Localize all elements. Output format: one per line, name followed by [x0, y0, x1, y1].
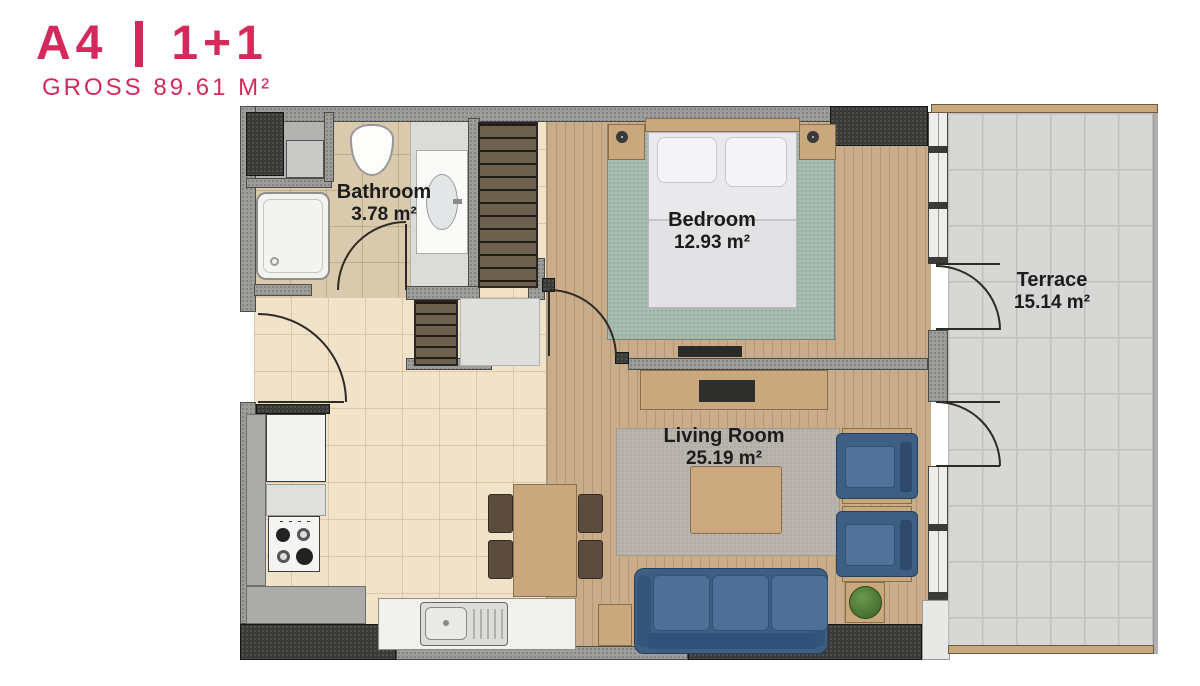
stove-knobs [277, 520, 313, 523]
column-southwest [240, 624, 396, 660]
wall-bathroom-south-left [254, 284, 312, 296]
sofa-cushion-3 [771, 575, 828, 631]
dining-chair-1 [488, 494, 513, 533]
sofa-cushion-1 [653, 575, 710, 631]
fridge [266, 414, 326, 482]
pillow-right [725, 137, 787, 187]
tv-console [640, 370, 828, 410]
wardrobe [478, 122, 538, 288]
faucet-icon [453, 199, 462, 204]
armchair-1-back [900, 442, 912, 492]
sofa-cushion-2 [712, 575, 769, 631]
entry-closet [414, 300, 458, 366]
wall-entry-nook [256, 404, 330, 414]
terrace-corner-cap [922, 600, 950, 660]
dining-table [513, 484, 577, 597]
glass-mullion-3 [928, 257, 948, 264]
washer [286, 140, 324, 178]
column-northwest [246, 112, 284, 176]
terrace-name: Terrace [1014, 268, 1090, 292]
armchair-2-seat [845, 524, 895, 566]
terrace-bottom-band [948, 645, 1154, 654]
burner-2 [297, 528, 310, 541]
bedroom-name: Bedroom [668, 208, 756, 232]
living-room-area: 25.19 m² [663, 448, 784, 471]
armchair-2-body [836, 511, 918, 577]
glass-mullion-2 [928, 202, 948, 209]
floor-plan-page: A4 | 1+1 GROSS 89.61 M² [0, 0, 1200, 686]
glass-mullion-1 [928, 146, 948, 153]
terrace-right-edge [1154, 113, 1158, 654]
bedside-lamp-right [807, 131, 819, 143]
shower-drain-icon [270, 257, 279, 266]
burner-1 [276, 528, 290, 542]
wall-utility-v [324, 112, 334, 182]
living-room-label: Living Room 25.19 m² [663, 424, 784, 471]
terrace-glass-wall-lower [928, 466, 948, 600]
glass-mullion-5 [928, 592, 948, 599]
bed-headboard [645, 118, 800, 132]
kitchen-counter-bottom [246, 586, 366, 624]
sofa-back [647, 633, 817, 649]
stove [268, 516, 320, 572]
terrace-top-band [931, 104, 1158, 113]
coffee-table [690, 466, 782, 534]
bathroom-label: Bathroom 3.78 m² [337, 180, 431, 227]
dining-chair-4 [578, 540, 603, 579]
terrace-label: Terrace 15.14 m² [1014, 268, 1090, 315]
kitchen-backsplash [266, 484, 326, 516]
bedside-lamp-left [616, 131, 628, 143]
burner-4 [296, 548, 313, 565]
sofa [634, 568, 828, 654]
armchair-1 [836, 428, 918, 504]
door-jamb-bedroom-bottom [615, 352, 629, 364]
unit-code: A4 [36, 20, 107, 68]
glass-mullion-4 [928, 524, 948, 531]
media-unit [699, 380, 755, 402]
armchair-2 [836, 506, 918, 582]
terrace-wall-pillar [928, 330, 948, 402]
bathroom-name: Bathroom [337, 180, 431, 204]
shower-tray [256, 192, 330, 280]
living-room-name: Living Room [663, 424, 784, 448]
bathroom-area: 3.78 m² [337, 204, 431, 227]
armchair-1-seat [845, 446, 895, 488]
pillow-left [657, 137, 717, 183]
terrace-area: 15.14 m² [1014, 292, 1090, 315]
wall-bedroom-south [628, 358, 928, 370]
plan-type: 1+1 [171, 20, 267, 68]
gross-area-text: GROSS 89.61 M² [42, 74, 272, 102]
bedroom-area: 12.93 m² [668, 232, 756, 255]
armchair-2-back [900, 520, 912, 570]
terrace-tile-floor [948, 113, 1154, 645]
title-divider-bar: | [135, 21, 143, 67]
burner-3 [277, 550, 290, 563]
kitchen-counter-left [246, 414, 266, 586]
terrace-glass-wall-upper [928, 112, 948, 264]
armchair-1-body [836, 433, 918, 499]
plant [849, 586, 882, 619]
sink-drain-icon [443, 620, 449, 626]
column-northeast [830, 106, 928, 146]
bedroom-wall-tv [678, 346, 742, 357]
bedroom-label: Bedroom 12.93 m² [668, 208, 756, 255]
wall-utility-h [246, 178, 332, 188]
kitchen-sink [420, 602, 508, 646]
closet-mat [460, 298, 540, 366]
end-table [598, 604, 632, 646]
nightstand-left [608, 124, 645, 160]
dining-chair-3 [578, 494, 603, 533]
door-jamb-bedroom-top [542, 278, 555, 292]
dining-chair-2 [488, 540, 513, 579]
nightstand-right [799, 124, 836, 160]
plan-title: A4 | 1+1 [36, 20, 268, 68]
sink-drainboard [473, 609, 503, 639]
